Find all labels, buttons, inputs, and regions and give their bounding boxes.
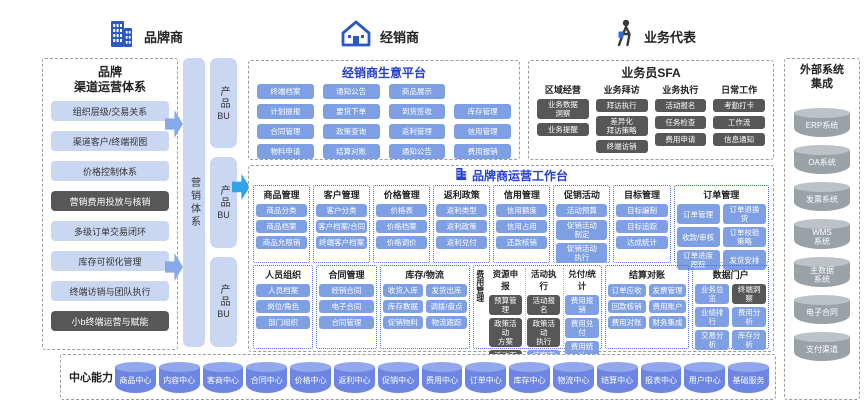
capability-item: 营销费用投放与核销 — [51, 191, 169, 211]
home-icon — [340, 18, 372, 55]
workbench-panel: 品牌商运营工作台 商品管理 商品分类商品档案商品允限销 客户管理 客户分类客户档… — [248, 165, 774, 352]
group-header: 信用管理 — [496, 188, 547, 201]
center-cylinder: 物流中心 — [553, 367, 594, 393]
center-cylinder: 订单中心 — [465, 367, 506, 393]
system-cylinder: 电子合同 — [794, 300, 850, 324]
module-box: 业务总览 — [695, 284, 729, 304]
module-box: 费用申请 — [655, 133, 707, 146]
module-box: 信用额度 — [496, 204, 547, 217]
module-box: 商品档案 — [256, 220, 307, 233]
center-cylinder: 库存中心 — [509, 367, 550, 393]
module-box: 部门组织 — [256, 316, 310, 329]
workbench-group: 库存/物流 收货入库发货出库库存数据调拨/盘点促销物料物流跟踪 — [380, 265, 470, 349]
panel-title: 业务员SFA — [537, 64, 765, 81]
product-bu-label-en: BU — [217, 111, 230, 121]
module-box: 收款/审核 — [677, 227, 720, 247]
system-cylinder: ERP系统 — [794, 113, 850, 137]
workbench-group: 人员组织 人员档案岗位/角色部门组织 — [253, 265, 313, 349]
module-box: 返利类型 — [436, 204, 487, 217]
module-box: 到货签收 — [389, 104, 446, 119]
product-bu-block: 产品 BU — [210, 157, 237, 247]
module-box: 达成统计 — [616, 236, 667, 249]
group-header: 业务拜访 — [596, 83, 648, 96]
workbench-group: 合同管理 经销合同电子合同合同管理 — [316, 265, 376, 349]
sfa-panel: 业务员SFA 区域经营 业务数据 洞察业务提醒 业务拜访 拜访执行差异化 拜访策… — [528, 60, 774, 160]
system-cylinder: 主数据 系统 — [794, 262, 850, 287]
product-bu-column: 产品 BU 产品 BU 产品 BU — [210, 58, 237, 347]
workbench-row-1: 商品管理 商品分类商品档案商品允限销 客户管理 客户分类客户档案/合同终端客户档… — [253, 185, 769, 263]
group-header: 业务执行 — [655, 83, 707, 96]
center-cylinder: 结算中心 — [597, 367, 638, 393]
building-icon — [106, 18, 136, 55]
module-box: 计划提报 — [257, 104, 314, 119]
dealer-column: 通知公告要货下单政策查询结算对账 — [323, 84, 380, 159]
fee-subgroup: 活动执行 活动报名政策活动 执行结案审核 — [525, 268, 561, 346]
module-box: 发票管理 — [649, 284, 687, 297]
module-box: 信息通知 — [713, 133, 765, 146]
module-box: 还款核销 — [496, 236, 547, 249]
actor-brand: 品牌商 — [106, 18, 183, 55]
module-box: 商品展示 — [389, 84, 446, 99]
actor-dealer: 经销商 — [340, 18, 419, 55]
building-icon — [454, 167, 468, 184]
module-box: 终端档案 — [257, 84, 314, 99]
product-bu-label-cn: 产品 — [216, 284, 231, 308]
module-box: 终端访销 — [596, 140, 648, 153]
dealer-module-grid: 终端档案计划提报合同管理物料申请 通知公告要货下单政策查询结算对账 商品展示到货… — [257, 84, 511, 159]
sfa-groups: 区域经营 业务数据 洞察业务提醒 业务拜访 拜访执行差异化 拜访策略终端访销 业… — [537, 83, 765, 153]
fee-subgroup: 资源申报 预算管理政策活动 方案活动下发 — [488, 268, 523, 346]
group-header: 商品管理 — [256, 188, 307, 201]
module-box: 回款核销 — [608, 300, 646, 313]
module-box: 政策活动 执行 — [527, 318, 560, 347]
center-cylinder: 基础服务 — [728, 367, 769, 393]
module-box: 交易分析 — [695, 330, 729, 350]
group-header: 数据门户 — [695, 268, 766, 281]
module-box: 价格调价 — [376, 236, 427, 249]
group-header: 返利政策 — [436, 188, 487, 201]
center-cylinder: 合同中心 — [246, 367, 287, 393]
workbench-group: 订单管理 订单管理订单退换 货收款/审核订单校验 策略订单进度 跟踪发货安排 — [674, 185, 769, 263]
module-box: 返利政策 — [436, 220, 487, 233]
capability-item: 库存可视化管理 — [51, 251, 169, 271]
sfa-group: 日常工作 考勤打卡工作流信息通知 — [713, 83, 765, 153]
panel-title-text: 品牌商运营工作台 — [472, 167, 568, 184]
module-box: 政策查询 — [323, 124, 380, 139]
module-box: 促销活动 执行 — [556, 243, 607, 263]
module-box: 终端客户档案 — [316, 236, 367, 249]
group-header: 活动执行 — [527, 268, 560, 292]
module-box: 商品分类 — [256, 204, 307, 217]
sfa-group: 业务拜访 拜访执行差异化 拜访策略终端访销 — [596, 83, 648, 153]
product-bu-block: 产品 BU — [210, 257, 237, 347]
module-box: 结算对账 — [323, 144, 380, 159]
group-header: 价格管理 — [376, 188, 427, 201]
actor-rep: 业务代表 — [614, 18, 696, 55]
actor-label: 业务代表 — [644, 27, 696, 46]
module-box: 业绩排行 — [695, 307, 729, 327]
workbench-group: 信用管理 信用额度信用占用还款核销 — [493, 185, 550, 263]
module-box: 目标编制 — [616, 204, 667, 217]
module-box: 订单管理 — [677, 204, 720, 224]
sfa-group: 区域经营 业务数据 洞察业务提醒 — [537, 83, 589, 153]
workbench-group: 返利政策 返利类型返利政策返利兑付 — [433, 185, 490, 263]
module-box: 订单退换 货 — [723, 204, 766, 224]
module-box: 财务集成 — [649, 316, 687, 329]
module-box: 合同管理 — [319, 316, 373, 329]
module-box: 客户档案/合同 — [316, 220, 367, 233]
module-box: 库存数据 — [383, 300, 424, 313]
module-box: 任务检查 — [655, 116, 707, 129]
module-box: 价格表 — [376, 204, 427, 217]
module-box: 活动报名 — [655, 99, 707, 112]
module-box: 要货下单 — [323, 104, 380, 119]
capability-item: 多级订单交易闭环 — [51, 221, 169, 241]
product-bu-label-cn: 产品 — [216, 185, 231, 209]
capability-item: 渠道客户/终端视图 — [51, 131, 169, 151]
group-header: 日常工作 — [713, 83, 765, 96]
group-header: 资源申报 — [489, 268, 522, 292]
group-header: 合同管理 — [319, 268, 373, 281]
sfa-group: 业务执行 活动报名任务检查费用申请 — [655, 83, 707, 153]
capability-item: 组织层级/交易关系 — [51, 101, 169, 121]
center-cylinder: 费用中心 — [422, 367, 463, 393]
center-cylinder: 价格中心 — [290, 367, 331, 393]
module-box: 调拨/盘点 — [426, 300, 467, 313]
diagram-canvas: 品牌商 经销商 业务代表 品牌 渠道运营体系 — [0, 0, 865, 411]
module-box: 收货入库 — [383, 284, 424, 297]
dealer-platform-panel: 经销商生意平台 终端档案计划提报合同管理物料申请 通知公告要货下单政策查询结算对… — [248, 60, 520, 160]
fee-subgroup: 兑付/统计 费用报销费用兑付费用统计 — [563, 268, 599, 346]
product-bu-label-cn: 产品 — [216, 86, 231, 110]
system-cylinder: 支付渠道 — [794, 337, 850, 361]
workbench-group: 结算对账 订单应收发票管理回款核销费用账户费用对账财务集成 — [605, 265, 690, 349]
module-box: 价格档案 — [376, 220, 427, 233]
dealer-column: 库存管理信用管理费用报销 — [454, 84, 511, 159]
module-box: 业务提醒 — [537, 123, 589, 136]
module-box: 人员档案 — [256, 284, 310, 297]
module-box: 活动报名 — [527, 295, 560, 315]
module-box: 库存管理 — [454, 104, 511, 119]
module-box: 费用分析 — [732, 307, 766, 327]
group-header: 结算对账 — [608, 268, 687, 281]
group-header: 库存/物流 — [383, 268, 467, 281]
module-box: 客户分类 — [316, 204, 367, 217]
system-cylinder: WMS 系统 — [794, 224, 850, 249]
center-cylinder: 内容中心 — [159, 367, 200, 393]
module-box: 业务数据 洞察 — [537, 99, 589, 119]
module-box: 岗位/角色 — [256, 300, 310, 313]
fee-group-label: 费用管理 — [475, 270, 486, 344]
group-header: 兑付/统计 — [565, 268, 598, 292]
module-box: 信用管理 — [454, 124, 511, 139]
panel-title: 经销商生意平台 — [257, 64, 511, 81]
workbench-group: 商品管理 商品分类商品档案商品允限销 — [253, 185, 310, 263]
group-header: 目标管理 — [616, 188, 667, 201]
workbench-row-2: 人员组织 人员档案岗位/角色部门组织 合同管理 经销合同电子合同合同管理 库存/… — [253, 265, 769, 349]
actor-label: 经销商 — [380, 27, 419, 46]
workbench-group: 价格管理 价格表价格档案价格调价 — [373, 185, 430, 263]
module-box: 返利管理 — [389, 124, 446, 139]
workbench-group: 客户管理 客户分类客户档案/合同终端客户档案 — [313, 185, 370, 263]
module-box: 订单校验 策略 — [723, 227, 766, 247]
product-bu-label-en: BU — [217, 309, 230, 319]
module-box: 电子合同 — [319, 300, 373, 313]
marketing-system-column: 营销体系 — [183, 58, 205, 347]
product-bu-label-en: BU — [217, 210, 230, 220]
module-box: 信用占用 — [496, 220, 547, 233]
center-capability-panel: 中心能力 商品中心内容中心客商中心合同中心价格中心返利中心促销中心费用中心订单中… — [60, 354, 776, 400]
module-box: 合同管理 — [257, 124, 314, 139]
workbench-group-fee: 费用管理 资源申报 预算管理政策活动 方案活动下发 活动执行 活动报名政策活动 … — [473, 265, 602, 349]
panel-title-line1: 品牌 — [51, 65, 169, 80]
module-box: 商品允限销 — [256, 236, 307, 249]
module-box: 通知公告 — [389, 144, 446, 159]
group-header: 促销活动 — [556, 188, 607, 201]
module-box: 订单应收 — [608, 284, 646, 297]
panel-title: 外部系统 集成 — [791, 64, 853, 92]
capability-list: 组织层级/交易关系渠道客户/终端视图价格控制体系营销费用投放与核销多级订单交易闭… — [51, 101, 169, 331]
capability-item: 终端访销与团队执行 — [51, 281, 169, 301]
brand-channel-panel: 品牌 渠道运营体系 组织层级/交易关系渠道客户/终端视图价格控制体系营销费用投放… — [42, 58, 178, 350]
dealer-column: 终端档案计划提报合同管理物料申请 — [257, 84, 314, 159]
module-box: 物流跟踪 — [426, 316, 467, 329]
system-cylinder: 发票系统 — [794, 187, 850, 211]
center-cylinder: 返利中心 — [334, 367, 375, 393]
capability-item: 小b终端运营与赋能 — [51, 311, 169, 331]
module-box: 费用兑付 — [565, 318, 598, 338]
dealer-column: 商品展示到货签收返利管理通知公告 — [389, 84, 446, 159]
module-box: 工作流 — [713, 116, 765, 129]
actor-label: 品牌商 — [144, 27, 183, 46]
module-box: 终端洞察 — [732, 284, 766, 304]
panel-title-line2: 渠道运营体系 — [51, 80, 169, 95]
module-box: 目标追踪 — [616, 220, 667, 233]
group-header: 人员组织 — [256, 268, 310, 281]
group-header: 客户管理 — [316, 188, 367, 201]
module-box: 物料申请 — [257, 144, 314, 159]
system-cylinder: OA系统 — [794, 150, 850, 174]
module-box: 库存分析 — [732, 330, 766, 350]
module-box: 促销物料 — [383, 316, 424, 329]
module-box: 费用报销 — [454, 144, 511, 159]
group-header: 区域经营 — [537, 83, 589, 96]
center-cylinder: 用户中心 — [684, 367, 725, 393]
module-box: 费用账户 — [649, 300, 687, 313]
center-cylinder: 客商中心 — [203, 367, 244, 393]
marketing-system-label: 营销体系 — [187, 177, 202, 229]
module-box: 活动预算 — [556, 204, 607, 217]
center-cylinder: 商品中心 — [115, 367, 156, 393]
module-box: 促销活动 制定 — [556, 220, 607, 240]
module-box: 预算管理 — [489, 295, 522, 315]
workbench-group: 促销活动 活动预算促销活动 制定促销活动 执行 — [553, 185, 610, 263]
external-systems-panel: 外部系统 集成 ERP系统OA系统发票系统WMS 系统主数据 系统电子合同支付渠… — [784, 58, 860, 400]
module-box: 返利兑付 — [436, 236, 487, 249]
module-box: 费用报销 — [565, 295, 598, 315]
workbench-group: 数据门户 业务总览终端洞察业绩排行费用分析交易分析库存分析 — [692, 265, 769, 349]
person-icon — [614, 18, 636, 55]
workbench-group: 目标管理 目标编制目标追踪达成统计 — [613, 185, 670, 263]
module-box: 政策活动 方案 — [489, 318, 522, 347]
center-cylinder: 促销中心 — [378, 367, 419, 393]
group-header: 订单管理 — [677, 188, 766, 201]
module-box: 费用对账 — [608, 316, 646, 329]
module-box: 考勤打卡 — [713, 99, 765, 112]
module-box: 拜访执行 — [596, 99, 648, 112]
module-box: 通知公告 — [323, 84, 380, 99]
center-cylinder: 报表中心 — [641, 367, 682, 393]
module-box: 差异化 拜访策略 — [596, 116, 648, 136]
module-box: 经销合同 — [319, 284, 373, 297]
capability-item: 价格控制体系 — [51, 161, 169, 181]
product-bu-block: 产品 BU — [210, 58, 237, 148]
panel-title: 中心能力 — [67, 369, 115, 385]
panel-title: 品牌商运营工作台 — [253, 168, 769, 183]
module-box: 发货出库 — [426, 284, 467, 297]
panel-title: 品牌 渠道运营体系 — [51, 65, 169, 95]
